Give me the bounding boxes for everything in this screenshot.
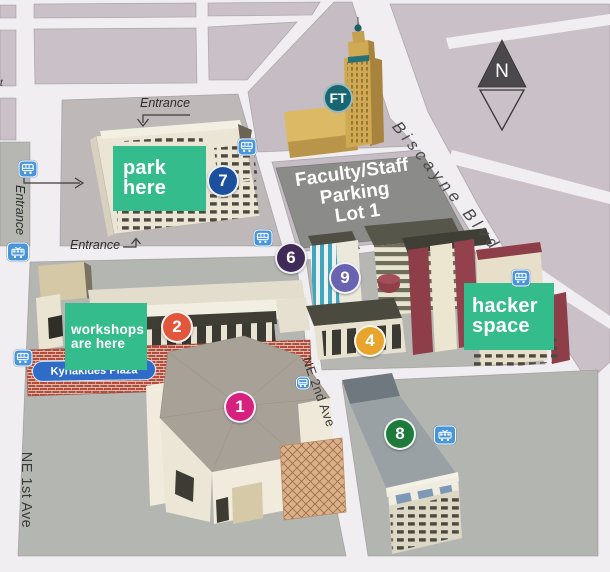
workshops-line2: are here: [71, 337, 147, 350]
bus-icon: [254, 230, 273, 247]
map-marker-2: 2: [161, 311, 193, 343]
street-label-ne-1st-ave: NE 1st Ave: [18, 452, 34, 528]
map-marker-7: 7: [207, 165, 239, 197]
bus-icon: [14, 350, 33, 367]
entrance-label-west: Entrance: [70, 238, 120, 252]
park-here-line1: park: [123, 159, 206, 179]
annotation-park-here: park here: [113, 146, 206, 211]
workshops-line1: workshops: [71, 323, 147, 336]
bus-icon: [296, 377, 310, 390]
campus-map: N Biscayne Blvd NE 2nd Ave NE 1st Ave t …: [0, 0, 610, 572]
street-label-fragment: t: [0, 78, 3, 89]
compass-north-label: N: [495, 61, 509, 82]
map-marker-9: 9: [329, 262, 361, 294]
map-marker-8: 8: [384, 418, 416, 450]
bus-icon: [238, 139, 257, 156]
bus-icon: [512, 270, 531, 287]
map-marker-4: 4: [354, 325, 386, 357]
map-marker-1: 1: [224, 391, 256, 423]
entrance-label-side-street: Entrance: [13, 185, 27, 235]
tram-icon: [434, 426, 456, 445]
bus-icon: [19, 161, 38, 178]
freedom-tower-badge: FT: [323, 83, 353, 113]
entrance-label-north: Entrance: [140, 96, 190, 110]
building-4: [306, 298, 406, 360]
annotation-hacker-space: hacker space: [464, 283, 554, 350]
map-marker-6: 6: [275, 242, 307, 274]
hacker-space-line2: space: [472, 317, 554, 337]
tram-icon: [7, 243, 29, 262]
hacker-space-line1: hacker: [472, 297, 554, 317]
park-here-line2: here: [123, 179, 206, 199]
annotation-workshops-are-here: workshops are here: [65, 303, 147, 370]
